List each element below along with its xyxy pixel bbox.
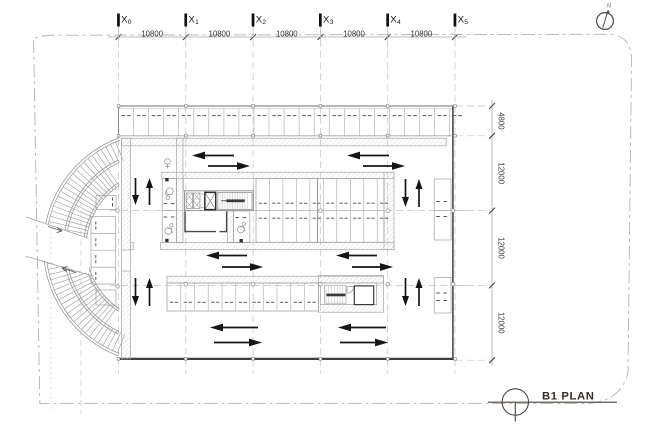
svg-text:2: 2 bbox=[262, 19, 266, 26]
svg-text:3: 3 bbox=[330, 19, 334, 26]
svg-text:N: N bbox=[607, 3, 612, 10]
svg-text:4800: 4800 bbox=[497, 112, 506, 130]
svg-text:1: 1 bbox=[195, 19, 199, 26]
svg-text:10800: 10800 bbox=[209, 29, 231, 38]
svg-text:4: 4 bbox=[397, 19, 401, 26]
svg-text:12000: 12000 bbox=[497, 237, 506, 259]
svg-text:10800: 10800 bbox=[343, 29, 365, 38]
svg-text:5: 5 bbox=[464, 19, 468, 26]
svg-text:12000: 12000 bbox=[497, 162, 506, 184]
svg-text:10800: 10800 bbox=[141, 29, 163, 38]
svg-text:0: 0 bbox=[128, 19, 132, 26]
svg-text:12000: 12000 bbox=[497, 312, 506, 334]
svg-text:10800: 10800 bbox=[276, 29, 298, 38]
svg-text:10800: 10800 bbox=[411, 29, 433, 38]
svg-text:B1 PLAN: B1 PLAN bbox=[542, 390, 595, 402]
